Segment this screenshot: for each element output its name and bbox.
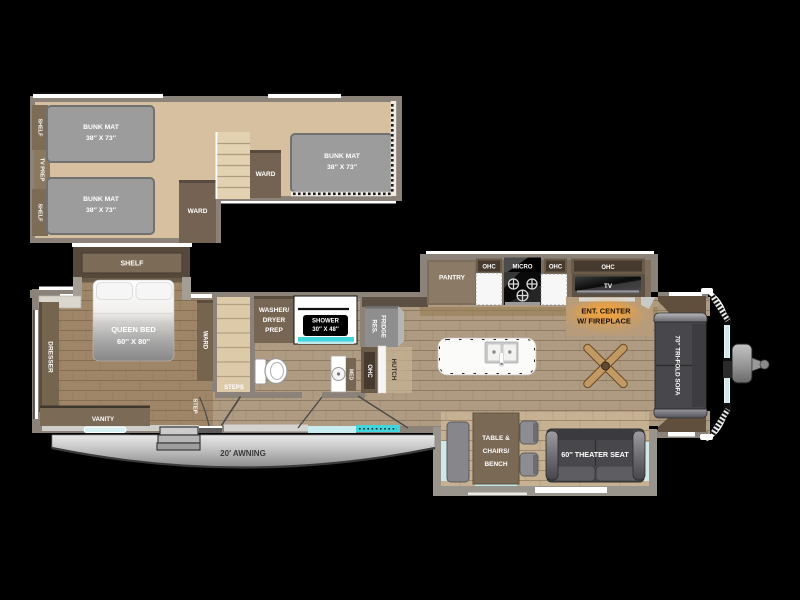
- svg-text:HUTCH: HUTCH: [390, 359, 397, 381]
- svg-text:30″ X 48″: 30″ X 48″: [312, 327, 339, 333]
- svg-text:SHELF: SHELF: [37, 203, 43, 222]
- svg-text:20′ AWNING: 20′ AWNING: [220, 449, 266, 458]
- svg-text:ENT. CENTER: ENT. CENTER: [581, 307, 631, 316]
- svg-text:W/ FIREPLACE: W/ FIREPLACE: [577, 317, 631, 326]
- svg-text:WARD: WARD: [201, 331, 207, 350]
- svg-text:60′′ X 80′′: 60′′ X 80′′: [117, 337, 150, 346]
- svg-text:SHOWER: SHOWER: [312, 319, 340, 325]
- svg-text:60′′ THEATER SEAT: 60′′ THEATER SEAT: [561, 450, 629, 459]
- svg-text:70′′ TRI-FOLD SOFA: 70′′ TRI-FOLD SOFA: [673, 335, 680, 395]
- svg-text:WARD: WARD: [256, 171, 276, 178]
- svg-text:WASHER/: WASHER/: [259, 307, 290, 314]
- svg-text:DRYER: DRYER: [263, 317, 286, 324]
- svg-text:38″ X 73″: 38″ X 73″: [86, 135, 117, 142]
- svg-text:SHELF: SHELF: [37, 118, 43, 137]
- svg-text:WARD: WARD: [188, 208, 208, 215]
- svg-text:STEPS: STEPS: [224, 385, 244, 391]
- svg-text:OHC: OHC: [549, 265, 563, 271]
- svg-text:OHC: OHC: [482, 265, 496, 271]
- svg-text:QUEEN BED: QUEEN BED: [111, 325, 156, 334]
- svg-text:38″ X 73″: 38″ X 73″: [86, 207, 117, 214]
- svg-text:FRIDGE: FRIDGE: [379, 315, 385, 338]
- svg-text:BENCH: BENCH: [484, 461, 507, 468]
- svg-text:TABLE &: TABLE &: [482, 435, 510, 442]
- svg-text:CHAIRS/: CHAIRS/: [483, 448, 510, 455]
- svg-text:STEP: STEP: [191, 398, 197, 413]
- svg-text:SHELF: SHELF: [121, 261, 145, 268]
- svg-text:RES.: RES.: [370, 319, 376, 333]
- svg-text:BUNK MAT: BUNK MAT: [83, 196, 120, 203]
- svg-text:PREP: PREP: [265, 327, 283, 334]
- svg-text:VANITY: VANITY: [92, 416, 115, 423]
- svg-text:MICRO: MICRO: [513, 265, 533, 271]
- svg-text:38″ X 73″: 38″ X 73″: [327, 164, 358, 171]
- svg-text:BUNK MAT: BUNK MAT: [83, 124, 120, 131]
- svg-text:PANTRY: PANTRY: [439, 275, 466, 282]
- svg-text:TV: TV: [604, 283, 613, 290]
- svg-text:TV PREP: TV PREP: [39, 158, 45, 182]
- svg-text:BUNK MAT: BUNK MAT: [324, 153, 361, 160]
- svg-text:MED: MED: [348, 369, 354, 381]
- svg-text:OHC: OHC: [601, 265, 615, 271]
- svg-text:OHC: OHC: [366, 364, 372, 378]
- svg-text:DRESSER: DRESSER: [46, 341, 53, 373]
